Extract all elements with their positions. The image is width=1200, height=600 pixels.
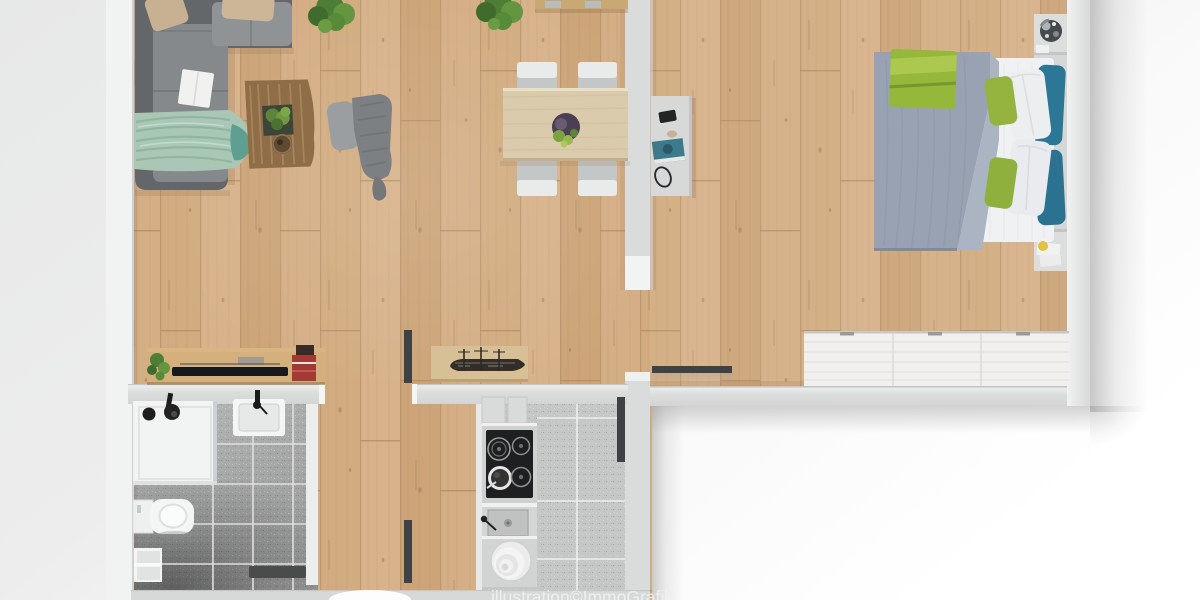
svg-text:illustration©ImmoGrafik: illustration©ImmoGrafik [491, 587, 673, 600]
